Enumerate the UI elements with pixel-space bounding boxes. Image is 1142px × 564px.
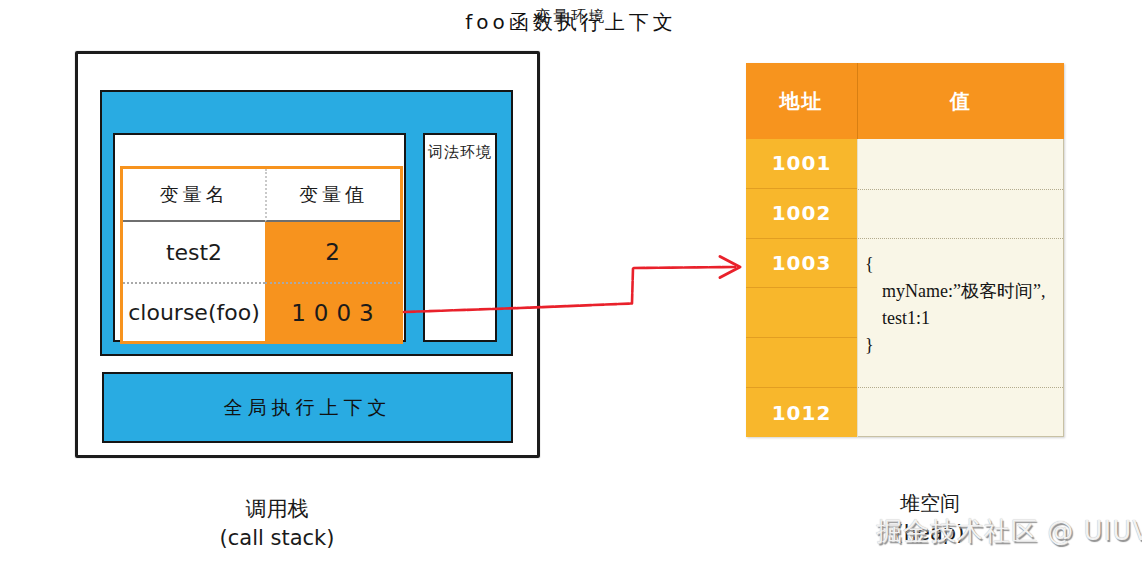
object-line: } bbox=[865, 332, 1045, 359]
variable-row-name: clourse(foo) bbox=[123, 282, 265, 341]
heap-address-cell bbox=[746, 287, 857, 337]
watermark: 掘金技术社区 @ UIUV bbox=[876, 514, 1142, 549]
variable-row-name: test2 bbox=[123, 222, 265, 282]
pointer-arrowhead bbox=[720, 257, 740, 278]
heap-address-cell: 1001 bbox=[746, 139, 857, 188]
heap-address-cell: 1002 bbox=[746, 188, 857, 238]
variable-row-value: 1003 bbox=[265, 282, 400, 341]
row-separator bbox=[858, 238, 1063, 239]
variable-table: 变量名 变量值 test2 2 clourse(foo) 1003 bbox=[120, 166, 403, 344]
variable-row-value: 2 bbox=[265, 222, 400, 282]
lexical-environment-box: 词法环境 bbox=[423, 133, 497, 342]
call-stack-caption-zh: 调用栈 bbox=[167, 495, 387, 524]
call-stack-caption: 调用栈 (call stack) bbox=[167, 495, 387, 553]
object-line: { bbox=[865, 251, 1045, 278]
heap-value-column: { myName:”极客时间”, test1:1 } bbox=[858, 139, 1064, 437]
heap-address-cell: 1003 bbox=[746, 238, 857, 288]
heap-header-address: 地址 bbox=[746, 63, 858, 139]
heap-object-literal: { myName:”极客时间”, test1:1 } bbox=[865, 251, 1045, 359]
lexical-environment-title: 词法环境 bbox=[425, 143, 495, 162]
variable-table-header-name: 变量名 bbox=[123, 169, 265, 222]
variable-table-header-value: 变量值 bbox=[265, 169, 400, 222]
object-line: test1:1 bbox=[865, 305, 1045, 332]
global-execution-context-box: 全局执行上下文 bbox=[102, 372, 513, 443]
object-line: myName:”极客时间”, bbox=[865, 278, 1045, 305]
heap-table: 地址 值 1001 1002 1003 1012 { myName:”极客时间”… bbox=[746, 63, 1064, 437]
row-separator bbox=[858, 387, 1063, 388]
heap-address-column: 1001 1002 1003 1012 bbox=[746, 139, 858, 437]
heap-address-cell: 1012 bbox=[746, 387, 857, 437]
call-stack-caption-en: (call stack) bbox=[167, 524, 387, 553]
heap-header-value: 值 bbox=[858, 63, 1064, 139]
global-context-title: 全局执行上下文 bbox=[224, 395, 392, 421]
heap-caption: 堆空间 bbox=[855, 490, 1005, 517]
variable-environment-title: 变量环境 bbox=[0, 7, 1142, 26]
heap-address-cell bbox=[746, 337, 857, 387]
row-separator bbox=[858, 189, 1063, 190]
